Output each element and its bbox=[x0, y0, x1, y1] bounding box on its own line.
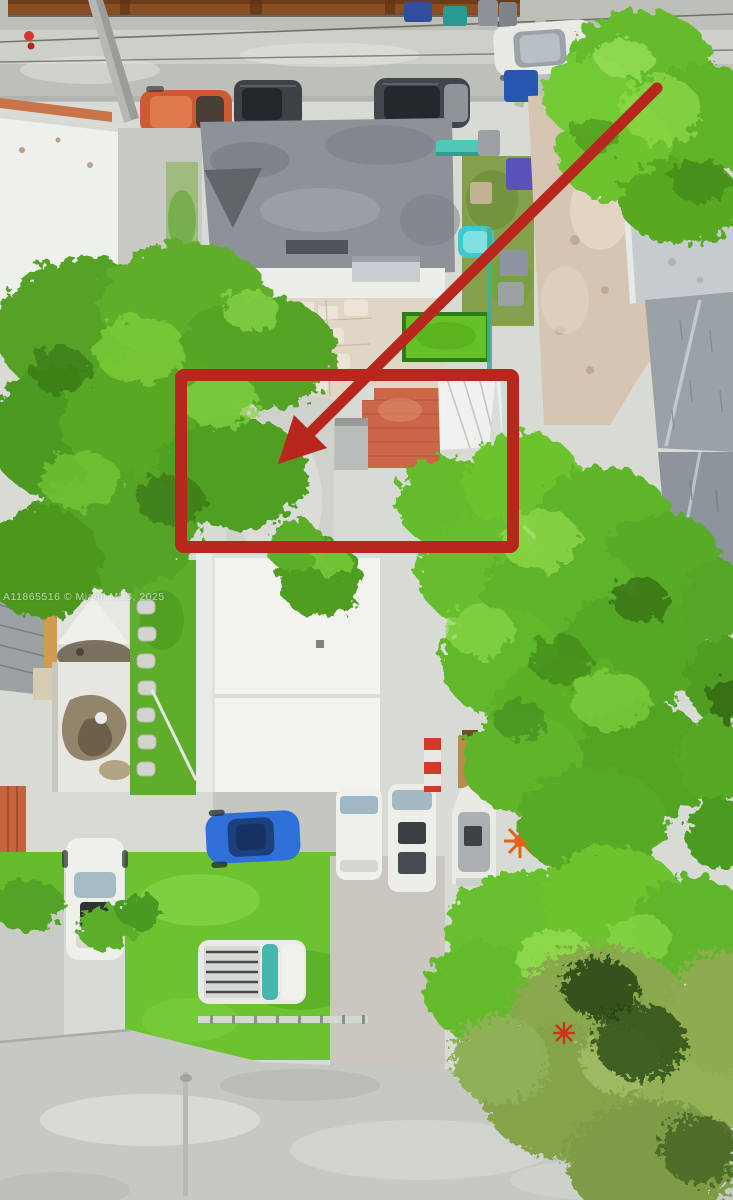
white-wall-strip bbox=[196, 545, 212, 792]
white-van-2 bbox=[388, 784, 436, 892]
red-flower bbox=[553, 1022, 575, 1044]
worn-roof-building bbox=[52, 662, 134, 792]
white-van-1 bbox=[336, 788, 382, 880]
fence-rail bbox=[198, 1015, 368, 1024]
right-shingle-roof-a bbox=[645, 292, 733, 452]
left-bottom-roof bbox=[0, 786, 26, 854]
photo-scene bbox=[0, 0, 733, 1200]
stepping-stone-path bbox=[130, 560, 196, 795]
blue-car bbox=[205, 806, 302, 869]
aerial-photo: A11865516 © Miami MLS, 2025 bbox=[0, 0, 733, 1200]
pickup-truck bbox=[198, 940, 306, 1004]
